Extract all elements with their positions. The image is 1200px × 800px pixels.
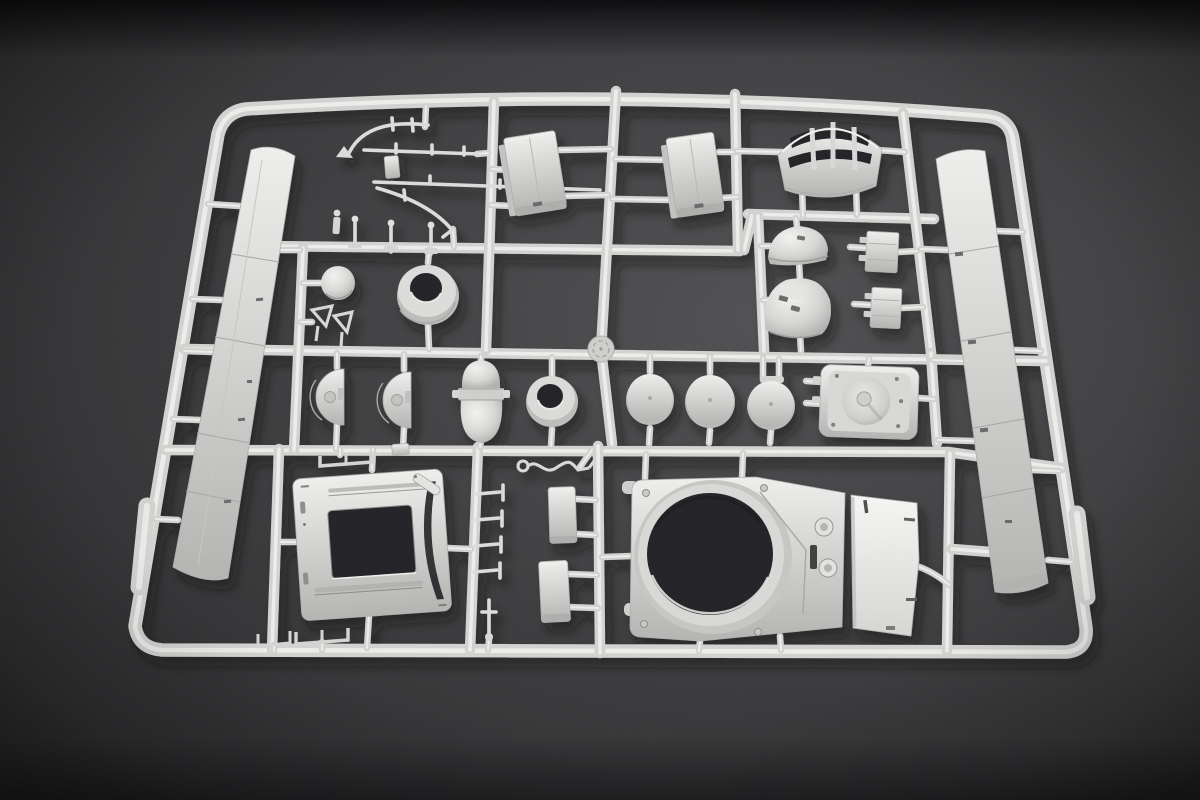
vignette bbox=[0, 0, 1200, 800]
sprue-photo: model-kit-sprue bbox=[0, 0, 1200, 800]
page: { "scene": { "type": "photograph", "subj… bbox=[0, 0, 1200, 800]
